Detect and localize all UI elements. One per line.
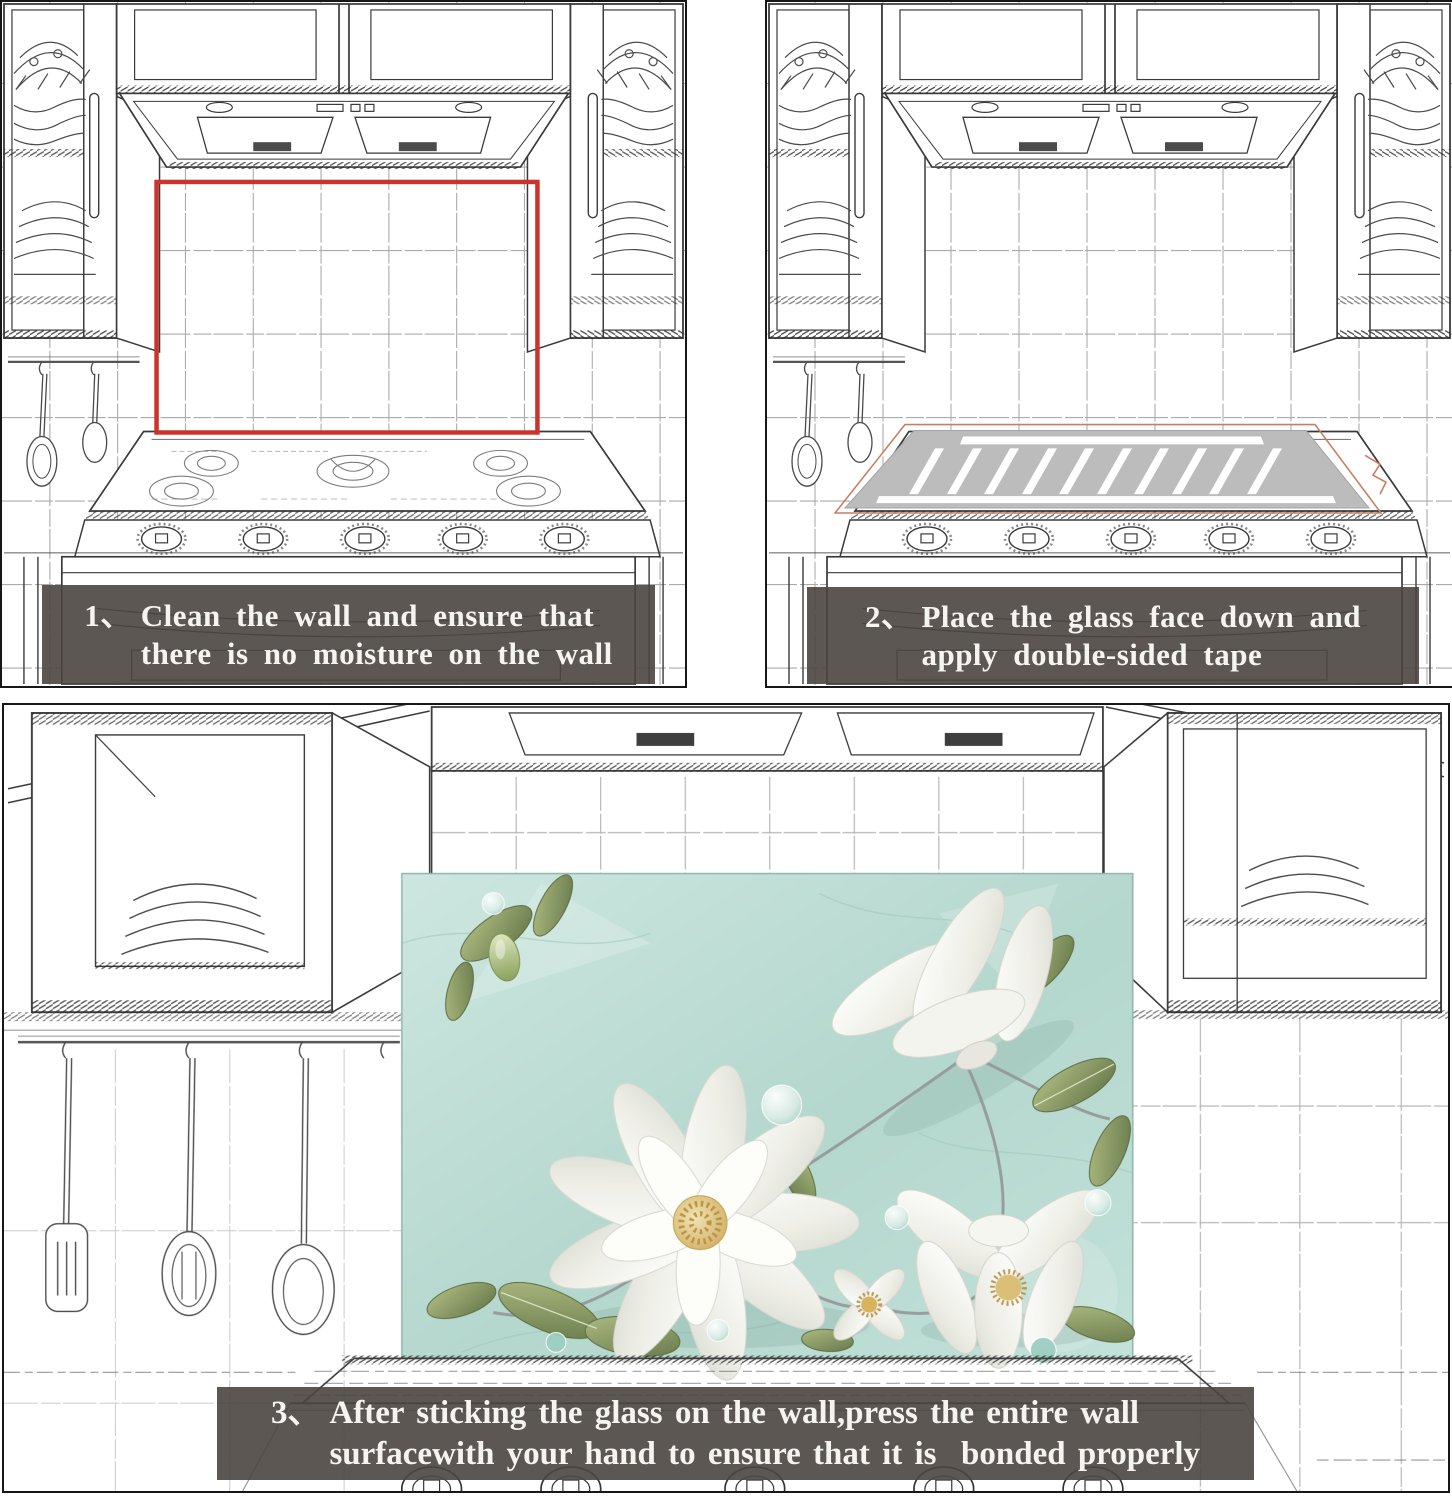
skimmer-spoon (162, 1058, 216, 1315)
step2-panel: 2、 Place the glass face down and apply d… (765, 0, 1452, 688)
step2-kitchen-sketch (767, 2, 1452, 686)
step1-kitchen-sketch (2, 2, 685, 686)
step2-number: 2、 (865, 598, 913, 636)
step1-panel: 1、 Clean the wall and ensure that there … (0, 0, 687, 688)
glass-face-down (835, 425, 1386, 513)
range-hood (432, 707, 1103, 877)
step1-number: 1、 (84, 597, 132, 635)
step3-kitchen-sketch (4, 705, 1448, 1491)
step3-text-line1: After sticking the glass on the wall,pre… (329, 1393, 1200, 1434)
installation-instruction-sheet: 1、 Clean the wall and ensure that there … (0, 0, 1452, 1500)
step3-number: 3、 (271, 1393, 321, 1434)
spatula (46, 1058, 88, 1311)
floral-glass-backsplash (402, 869, 1139, 1385)
step2-caption: 2、 Place the glass face down and apply d… (807, 587, 1419, 684)
step2-text-line1: Place the glass face down and (921, 598, 1361, 636)
right-cabinet (1098, 713, 1448, 1019)
ladle-spoon (273, 1058, 335, 1334)
utensil-rail (18, 1036, 400, 1334)
step3-caption: 3、 After sticking the glass on the wall,… (217, 1387, 1254, 1480)
step1-caption: 1、 Clean the wall and ensure that there … (42, 585, 655, 684)
step3-text-line2: surfacewith your hand to ensure that it … (329, 1434, 1200, 1475)
backsplash-area-outline (157, 182, 538, 433)
step3-panel: 3、 After sticking the glass on the wall,… (2, 703, 1450, 1493)
step2-text-line2: apply double-sided tape (921, 636, 1361, 674)
left-cabinet (4, 713, 432, 1030)
step1-text-line1: Clean the wall and ensure that (141, 597, 613, 635)
step1-text-line2: there is no moisture on the wall (141, 635, 613, 673)
